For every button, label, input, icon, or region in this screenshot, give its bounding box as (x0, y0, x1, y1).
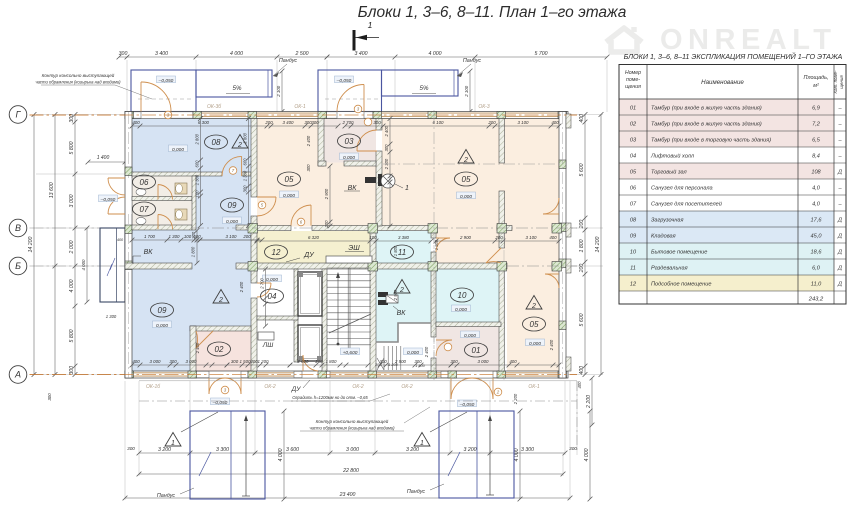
svg-text:+0,600: +0,600 (343, 350, 358, 356)
svg-text:200: 200 (494, 235, 503, 240)
svg-text:05: 05 (630, 170, 637, 176)
svg-text:1 500: 1 500 (240, 359, 252, 364)
svg-text:части обрамления (козырька над: части обрамления (козырька над входами) (35, 80, 121, 85)
svg-text:200: 200 (264, 120, 273, 125)
svg-text:0,000: 0,000 (156, 323, 168, 329)
svg-text:Тамбур (при входе в жилую част: Тамбур (при входе в жилую часть здания) (651, 106, 762, 112)
svg-text:300: 300 (373, 120, 381, 125)
svg-text:Контур консольно выступающей: Контур консольно выступающей (42, 72, 115, 78)
svg-text:400: 400 (579, 366, 585, 375)
svg-text:0,000: 0,000 (460, 194, 472, 200)
svg-text:1 200: 1 200 (258, 359, 270, 364)
svg-text:ЭШ: ЭШ (348, 245, 360, 252)
svg-text:02: 02 (215, 345, 224, 354)
svg-text:3 000: 3 000 (478, 359, 490, 364)
svg-text:300: 300 (231, 359, 239, 364)
svg-text:Кладовая: Кладовая (651, 234, 676, 240)
svg-text:07: 07 (140, 205, 149, 214)
svg-text:0,000: 0,000 (343, 155, 355, 161)
svg-text:ВК: ВК (397, 310, 407, 317)
svg-text:Лифтовый холл: Лифтовый холл (650, 153, 695, 160)
svg-text:4 000: 4 000 (69, 279, 75, 292)
svg-text:300: 300 (384, 144, 389, 152)
svg-text:03: 03 (345, 137, 354, 146)
svg-text:В: В (15, 223, 21, 233)
svg-text:ОК-2: ОК-2 (401, 384, 413, 390)
svg-text:600: 600 (195, 160, 200, 168)
svg-text:1 800: 1 800 (326, 359, 338, 364)
svg-text:02: 02 (630, 122, 637, 128)
svg-text:3 380: 3 380 (398, 235, 410, 240)
svg-text:Торговый зал: Торговый зал (651, 169, 688, 176)
svg-text:300: 300 (69, 366, 75, 375)
svg-text:1 300: 1 300 (106, 314, 117, 319)
svg-text:05: 05 (462, 175, 471, 184)
svg-text:400: 400 (551, 120, 559, 125)
svg-text:–0,050: –0,050 (158, 78, 174, 84)
svg-text:600: 600 (243, 158, 248, 166)
svg-text:5%: 5% (420, 85, 429, 92)
svg-text:Номер: Номер (625, 70, 641, 76)
svg-text:100: 100 (195, 190, 200, 198)
svg-text:1: 1 (368, 20, 373, 30)
svg-text:7,2: 7,2 (812, 122, 821, 128)
svg-text:05: 05 (285, 175, 294, 184)
svg-text:1 800: 1 800 (393, 245, 398, 256)
svg-text:2 400: 2 400 (306, 135, 311, 147)
svg-text:3 600: 3 600 (286, 447, 299, 453)
svg-text:Наименование: Наименование (701, 79, 744, 86)
svg-text:17,6: 17,6 (811, 218, 823, 224)
svg-text:поме-: поме- (626, 77, 640, 83)
svg-text:2 400: 2 400 (239, 281, 244, 293)
svg-text:2 400: 2 400 (549, 339, 554, 351)
svg-text:0,000: 0,000 (226, 219, 238, 225)
svg-text:5 800: 5 800 (69, 329, 75, 342)
svg-text:3 300: 3 300 (216, 447, 229, 453)
svg-text:Загрузочная: Загрузочная (651, 218, 684, 224)
svg-text:Пандус: Пандус (279, 58, 297, 64)
svg-text:300: 300 (127, 446, 135, 451)
svg-text:12: 12 (272, 248, 281, 257)
svg-text:Пандус: Пандус (407, 489, 425, 495)
svg-text:12: 12 (630, 282, 637, 288)
svg-text:3 100: 3 100 (526, 235, 538, 240)
svg-text:3 200: 3 200 (158, 447, 171, 453)
svg-text:ДУ: ДУ (303, 252, 315, 259)
svg-text:3 000: 3 000 (69, 194, 75, 207)
svg-text:2 400: 2 400 (195, 342, 200, 354)
svg-text:0,000: 0,000 (407, 350, 419, 356)
svg-text:10: 10 (630, 250, 637, 256)
svg-text:Оградить h=1200мм но до отм. –: Оградить h=1200мм но до отм. –0,65 (292, 395, 368, 400)
svg-text:Д: Д (837, 282, 842, 288)
svg-text:Бытовое помещение: Бытовое помещение (651, 250, 707, 256)
svg-text:2 900: 2 900 (324, 188, 329, 200)
svg-text:08: 08 (630, 218, 637, 224)
svg-text:6,9: 6,9 (812, 106, 820, 112)
svg-text:–0,050: –0,050 (459, 402, 475, 408)
svg-text:ОК-1б: ОК-1б (146, 384, 160, 390)
svg-text:Контур консольно выступающей: Контур консольно выступающей (316, 418, 389, 424)
svg-text:1: 1 (171, 440, 175, 447)
svg-text:ОК-3б: ОК-3б (207, 104, 221, 110)
svg-text:Блоки 1, 3–6, 8–11. План 1: Блоки 1, 3–6, 8–11. План 1–го этажа (358, 4, 627, 21)
svg-text:300: 300 (169, 359, 177, 364)
svg-text:05: 05 (530, 320, 539, 329)
svg-text:Тамбур (при входе в торговую ч: Тамбур (при входе в торговую часть здани… (651, 138, 771, 144)
svg-text:2 000: 2 000 (69, 240, 75, 254)
svg-text:Пандус: Пандус (157, 493, 175, 499)
svg-text:–0,050: –0,050 (336, 78, 352, 84)
svg-text:3 300: 3 300 (521, 447, 534, 453)
svg-text:2 900: 2 900 (393, 289, 398, 301)
svg-text:3 100: 3 100 (226, 234, 238, 239)
svg-text:4 000: 4 000 (81, 259, 86, 271)
svg-text:1 800: 1 800 (191, 246, 196, 257)
svg-text:ОК-2: ОК-2 (264, 384, 276, 390)
svg-text:04: 04 (630, 154, 636, 160)
svg-text:2 700: 2 700 (260, 278, 265, 290)
svg-text:5 700: 5 700 (535, 51, 548, 57)
svg-text:200: 200 (242, 234, 251, 239)
svg-text:Д: Д (837, 170, 842, 176)
svg-text:2 900: 2 900 (394, 359, 407, 364)
svg-text:ОК-1: ОК-1 (294, 104, 306, 110)
svg-text:3 400: 3 400 (155, 51, 168, 57)
svg-text:200: 200 (324, 220, 329, 229)
svg-text:4 000: 4 000 (514, 448, 520, 461)
svg-text:ОК-3: ОК-3 (478, 104, 490, 110)
svg-text:0,000: 0,000 (529, 341, 541, 347)
svg-text:2 100: 2 100 (464, 85, 469, 98)
svg-text:5%: 5% (233, 85, 242, 92)
svg-text:2 200: 2 200 (513, 393, 518, 405)
svg-text:108: 108 (811, 170, 821, 176)
svg-text:6 320: 6 320 (308, 235, 320, 240)
svg-text:09: 09 (630, 234, 636, 240)
svg-text:2 100: 2 100 (276, 85, 281, 98)
svg-text:300: 300 (569, 446, 577, 451)
svg-text:10: 10 (458, 291, 467, 300)
svg-text:400: 400 (509, 359, 517, 364)
svg-text:5 600: 5 600 (579, 313, 585, 326)
svg-text:щения: щения (839, 75, 844, 89)
svg-text:4 000: 4 000 (429, 51, 442, 57)
svg-text:400: 400 (132, 120, 140, 125)
svg-text:300: 300 (47, 393, 52, 401)
svg-text:3 000: 3 000 (346, 447, 359, 453)
svg-text:2: 2 (218, 297, 223, 304)
svg-text:8,4: 8,4 (812, 154, 820, 160)
svg-text:Тамбур (при входе в жилую част: Тамбур (при входе в жилую часть здания) (651, 122, 762, 128)
svg-text:200: 200 (314, 359, 323, 364)
svg-text:300: 300 (119, 51, 128, 57)
svg-text:ОК-2: ОК-2 (352, 384, 364, 390)
svg-text:2 400: 2 400 (424, 346, 429, 358)
svg-text:4 000: 4 000 (278, 448, 284, 461)
svg-text:1 800: 1 800 (579, 239, 585, 252)
svg-text:243,2: 243,2 (808, 297, 824, 303)
svg-text:300: 300 (379, 359, 387, 364)
svg-text:3 400: 3 400 (355, 51, 368, 57)
svg-text:6,0: 6,0 (812, 266, 821, 272)
svg-text:09: 09 (158, 306, 167, 315)
svg-text:2 800: 2 800 (243, 132, 248, 144)
svg-text:1 800: 1 800 (434, 239, 439, 250)
svg-text:3 000: 3 000 (186, 359, 198, 364)
svg-text:м²: м² (813, 83, 819, 89)
svg-text:6 300: 6 300 (198, 120, 210, 125)
svg-text:Б: Б (15, 261, 21, 271)
svg-text:300: 300 (243, 185, 248, 193)
svg-text:2: 2 (237, 142, 242, 149)
svg-text:Раздевальная: Раздевальная (651, 266, 688, 272)
svg-text:07: 07 (630, 202, 637, 208)
svg-text:400: 400 (549, 235, 557, 240)
svg-text:2 200: 2 200 (586, 395, 592, 409)
svg-text:200: 200 (191, 231, 196, 240)
svg-text:2 500: 2 500 (295, 51, 309, 57)
svg-text:2: 2 (463, 157, 468, 164)
svg-text:11: 11 (630, 266, 636, 272)
svg-text:2 700: 2 700 (342, 120, 355, 125)
svg-text:2: 2 (531, 303, 536, 310)
svg-text:14 200: 14 200 (28, 236, 34, 252)
svg-text:БЛОКИ 1, 3–6, 8–11 ЭКСПЛИКА: БЛОКИ 1, 3–6, 8–11 ЭКСПЛИКАЦИЯ ПОМЕЩЕНИЙ… (624, 52, 843, 61)
svg-text:200: 200 (579, 220, 585, 230)
svg-text:0,000: 0,000 (283, 193, 295, 199)
svg-text:08: 08 (212, 138, 221, 147)
svg-text:щения: щения (625, 84, 641, 90)
svg-text:Д: Д (837, 250, 842, 256)
svg-text:100: 100 (369, 235, 377, 240)
svg-text:45,0: 45,0 (811, 234, 823, 240)
svg-text:2 400: 2 400 (384, 125, 389, 137)
svg-text:0,000: 0,000 (266, 277, 278, 283)
svg-text:ОК-1: ОК-1 (528, 384, 540, 390)
svg-text:06: 06 (140, 178, 149, 187)
svg-text:1 400: 1 400 (97, 155, 110, 161)
svg-text:части обрамления (козырька над: части обрамления (козырька над входами) (309, 426, 395, 431)
svg-text:4 000: 4 000 (584, 448, 590, 461)
svg-text:01: 01 (472, 346, 481, 355)
svg-text:А: А (14, 370, 21, 380)
svg-text:2 600: 2 600 (297, 359, 310, 364)
svg-text:Д: Д (837, 234, 842, 240)
svg-text:04: 04 (268, 292, 277, 301)
svg-text:ВК: ВК (144, 249, 154, 256)
svg-text:3 000: 3 000 (150, 359, 162, 364)
svg-text:1: 1 (405, 185, 409, 192)
svg-text:2 900: 2 900 (459, 235, 472, 240)
svg-text:400: 400 (132, 359, 140, 364)
svg-text:Д: Д (837, 218, 842, 224)
svg-text:–0,050: –0,050 (100, 197, 116, 203)
svg-text:Санузел для посетителей: Санузел для посетителей (651, 201, 722, 208)
svg-text:03: 03 (630, 138, 637, 144)
svg-text:Санузел для персонала: Санузел для персонала (651, 186, 713, 192)
svg-text:Кат. поме-: Кат. поме- (833, 70, 838, 93)
svg-text:2 800: 2 800 (195, 133, 200, 145)
svg-text:Подсобное помещение: Подсобное помещение (651, 282, 711, 288)
svg-text:1 300: 1 300 (169, 234, 181, 239)
svg-text:22 800: 22 800 (342, 468, 359, 474)
svg-text:300: 300 (311, 120, 319, 125)
svg-text:3 400: 3 400 (283, 120, 295, 125)
svg-text:300: 300 (306, 164, 311, 172)
svg-text:300: 300 (450, 359, 458, 364)
svg-text:3 100: 3 100 (518, 120, 530, 125)
svg-text:1: 1 (420, 440, 424, 447)
svg-text:1 300: 1 300 (243, 170, 248, 181)
svg-text:1 300: 1 300 (195, 174, 200, 185)
svg-text:11: 11 (398, 248, 406, 257)
svg-text:1 700: 1 700 (144, 234, 156, 239)
svg-text:09: 09 (228, 201, 237, 210)
svg-text:23 400: 23 400 (339, 492, 356, 498)
svg-text:200: 200 (579, 264, 585, 274)
svg-text:ЛШ: ЛШ (262, 342, 273, 349)
svg-text:400: 400 (117, 238, 124, 242)
svg-text:200: 200 (487, 120, 496, 125)
svg-text:3 200: 3 200 (464, 447, 477, 453)
svg-text:2: 2 (399, 287, 404, 294)
svg-text:Д: Д (837, 266, 842, 272)
svg-text:400: 400 (579, 114, 585, 123)
svg-text:300: 300 (414, 359, 422, 364)
svg-text:11,0: 11,0 (811, 282, 822, 288)
svg-text:Площадь,: Площадь, (804, 75, 829, 81)
svg-text:0,000: 0,000 (455, 307, 467, 313)
svg-text:4,0: 4,0 (812, 186, 821, 192)
svg-text:Пандус: Пандус (463, 58, 481, 64)
svg-text:5 600: 5 600 (579, 163, 585, 176)
svg-text:5 800: 5 800 (69, 141, 75, 154)
svg-text:ДУ: ДУ (291, 386, 302, 393)
svg-text:01: 01 (630, 106, 636, 112)
svg-text:2: 2 (496, 390, 500, 395)
svg-text:3 200: 3 200 (406, 447, 419, 453)
svg-text:18,6: 18,6 (811, 250, 823, 256)
svg-text:06: 06 (630, 186, 637, 192)
svg-text:400: 400 (577, 381, 582, 389)
svg-text:0,000: 0,000 (172, 147, 184, 153)
svg-text:4 000: 4 000 (230, 51, 243, 57)
svg-text:0,000: 0,000 (464, 333, 476, 339)
svg-text:4,0: 4,0 (812, 202, 821, 208)
svg-text:13 600: 13 600 (49, 182, 55, 198)
svg-text:6,5: 6,5 (812, 138, 821, 144)
svg-text:14 200: 14 200 (595, 236, 601, 252)
